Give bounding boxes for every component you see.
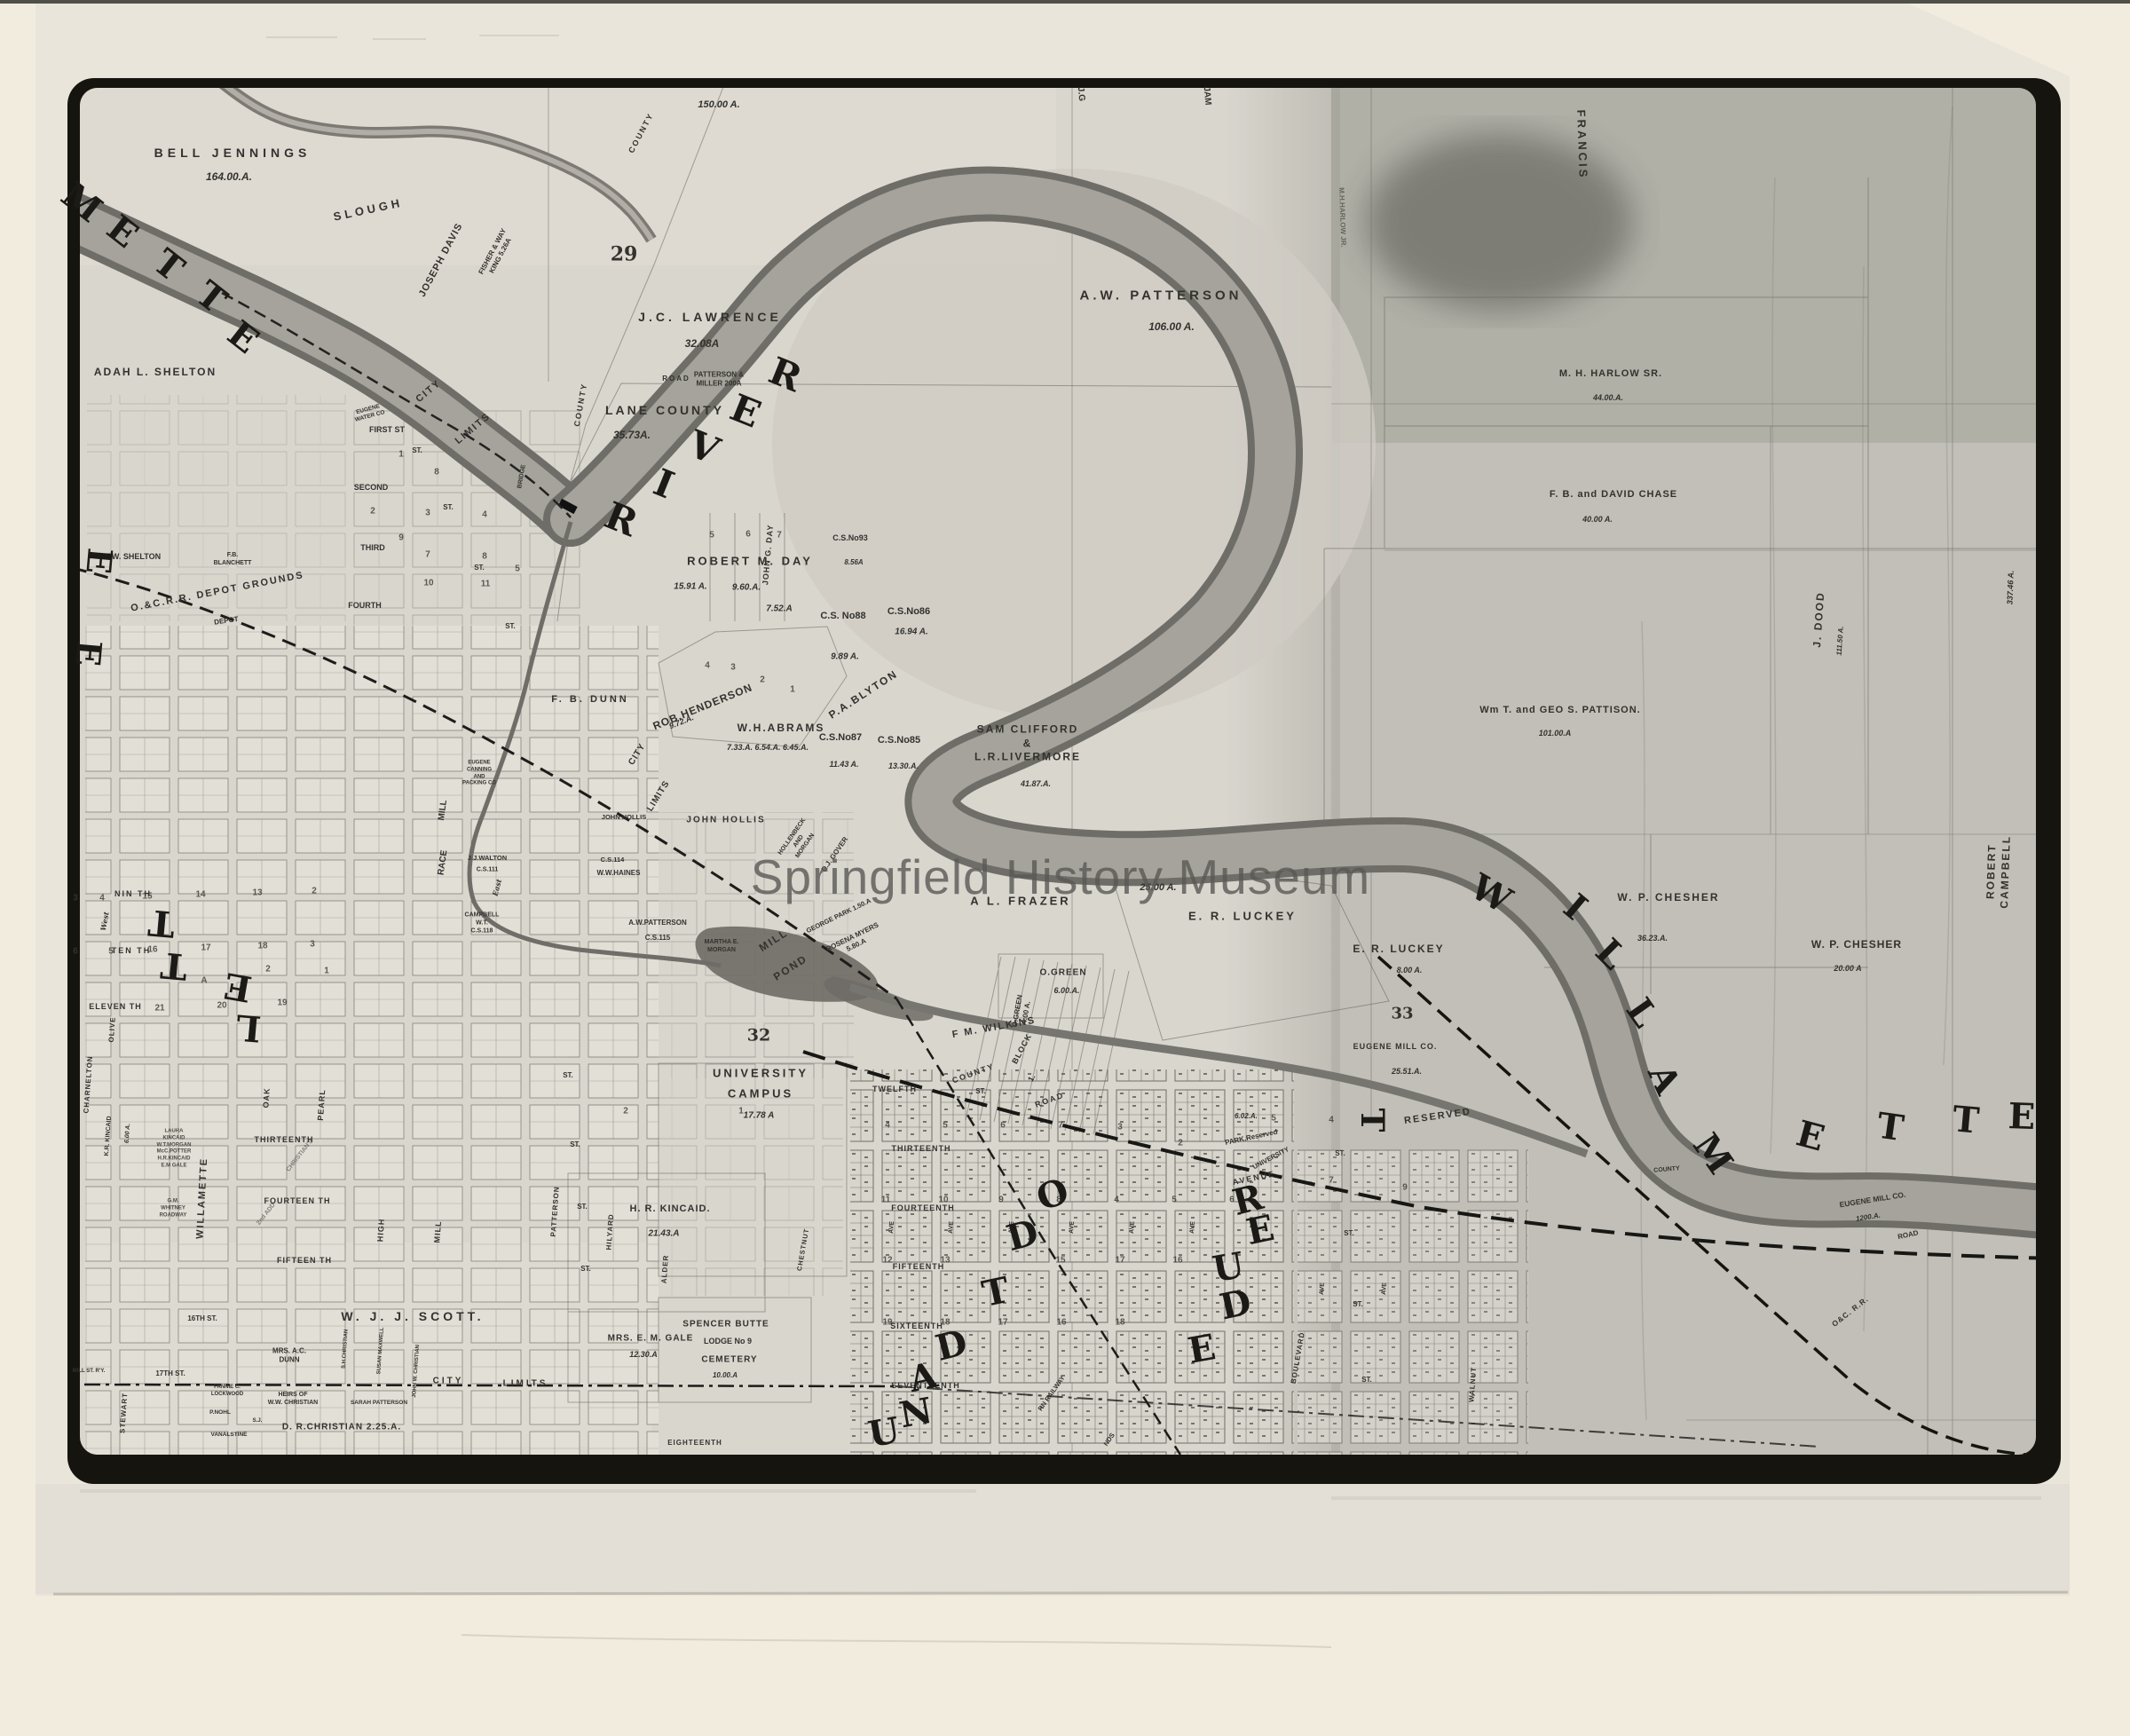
block-number-A: A — [201, 976, 207, 986]
label-oak: OAK — [261, 1087, 272, 1109]
block-number-4: 4 — [99, 894, 105, 904]
block-number-16: 16 — [1056, 1318, 1066, 1328]
block-number-17: 17 — [1115, 1256, 1124, 1266]
block-number-21: 21 — [154, 1004, 164, 1014]
big-letter-t: T — [146, 901, 177, 944]
label-st: ST. — [1344, 1229, 1354, 1238]
label-w-h-abrams: W.H.ABRAMS — [738, 722, 825, 736]
label-twelfth: TWELFTH — [872, 1085, 917, 1095]
label-road: ROAD — [662, 375, 690, 383]
block-number-7: 7 — [1058, 1121, 1063, 1131]
block-number-4: 4 — [1114, 1195, 1119, 1205]
label-44-00-a: 44.00.A. — [1593, 393, 1623, 404]
label-16th-st: 16TH ST. — [187, 1314, 217, 1323]
block-number-8: 8 — [1056, 1195, 1061, 1205]
label-20-00-a: 20.00 A — [1834, 964, 1861, 975]
label-c-s-no85: C.S.No85 — [878, 734, 920, 746]
label-fourteenth: FOURTEENTH — [891, 1203, 955, 1214]
label-150-00-a: 150.00 A. — [698, 99, 739, 111]
label-robert-m-day: ROBERT M. DAY — [687, 555, 813, 570]
label-mill-st-r-y: MILL ST. R'Y. — [73, 1369, 106, 1376]
block-number-3: 3 — [73, 894, 78, 904]
block-number-20: 20 — [217, 1001, 226, 1011]
label-st: ST. — [1353, 1300, 1363, 1309]
label-sarah-patterson: SARAH PATTERSON — [351, 1400, 407, 1407]
block-number-6: 6 — [73, 947, 78, 957]
block-number-15: 15 — [142, 892, 152, 902]
block-number-18: 18 — [940, 1318, 950, 1328]
block-number-7: 7 — [425, 550, 430, 560]
label-eugene-mill-co: EUGENE MILL CO. — [1353, 1042, 1438, 1053]
block-number-1: 1 — [324, 967, 329, 976]
label-st: ST. — [1361, 1376, 1372, 1385]
label-st: ST. — [570, 1140, 580, 1149]
label-17-78-a: 17.78 A — [744, 1110, 775, 1122]
label-12-30-a: 12.30.A — [629, 1350, 658, 1361]
big-letter-n: N — [896, 1390, 935, 1437]
label-mill: MILL — [432, 1220, 444, 1243]
label-9-60-a: 9.60.A. — [732, 582, 761, 594]
label-john-hollis: JOHN HOLLIS — [686, 815, 765, 826]
block-number-5: 5 — [515, 564, 520, 574]
label-c-s-no93: C.S.No93 — [832, 533, 868, 544]
label-olive: OLIVE — [107, 1016, 118, 1043]
label-c-s-111: C.S.111 — [477, 865, 499, 873]
block-number-4: 4 — [705, 661, 710, 671]
block-number-4: 4 — [1329, 1116, 1334, 1125]
section-number-29: 29 — [611, 242, 638, 268]
label-35-73a: 35.73A. — [613, 429, 651, 443]
label-st: ST. — [505, 622, 516, 631]
block-number-9: 9 — [1402, 1183, 1408, 1193]
big-letter-e: E — [67, 639, 109, 668]
label-eugene-canning-and-packing-co: EUGENE CANNING AND PACKING CO — [462, 760, 496, 787]
big-letter-e: E — [78, 547, 120, 576]
block-number-14: 14 — [195, 890, 205, 900]
block-number-13: 13 — [940, 1256, 950, 1266]
label-eighteenth: EIGHTEENTH — [667, 1439, 722, 1448]
block-number-8: 8 — [434, 468, 439, 477]
label-st: ST. — [1335, 1149, 1345, 1158]
label-7-33-a-6-54-a-6-45-a: 7.33.A. 6.54.A. 6.45.A. — [727, 743, 809, 754]
label-f-b-dunn: F. B. DUNN — [551, 693, 628, 706]
block-number-3: 3 — [310, 940, 315, 950]
block-number-6: 6 — [1229, 1195, 1235, 1205]
block-number-16: 16 — [1172, 1256, 1182, 1266]
photograph-of-historic-map: BELL JENNINGS164.00.A.150.00 A.SLOUGHCOU… — [0, 0, 2130, 1736]
block-number-9: 9 — [998, 1195, 1004, 1205]
label-d-r-christian-2-25-a: D. R.CHRISTIAN 2.25.A. — [282, 1422, 401, 1433]
block-number-19: 19 — [277, 998, 287, 1008]
label-6-00-a: 6.00 A. — [123, 1124, 133, 1144]
label-first-st: FIRST ST — [369, 425, 405, 436]
label-106-00-a: 106.00 A. — [1148, 320, 1195, 335]
block-number-9: 9 — [398, 533, 404, 543]
label-g-m-whitney-roadway: G.M. WHITNEY ROADWAY — [160, 1198, 187, 1219]
block-number-16: 16 — [147, 945, 157, 955]
label-ten-th: TEN TH — [112, 946, 152, 957]
section-number-32: 32 — [747, 1025, 770, 1047]
label-e-r-luckey: E. R. LUCKEY — [1188, 910, 1297, 925]
block-number-6: 6 — [745, 530, 751, 540]
block-number-10: 10 — [938, 1195, 948, 1205]
block-number-1: 1 — [398, 450, 404, 460]
label-vanalstine: VANALSTINE — [210, 1432, 247, 1439]
label-8-56a: 8.56A — [844, 558, 863, 567]
block-number-7: 7 — [1329, 1176, 1334, 1186]
label-15-91-a: 15.91 A. — [674, 581, 706, 593]
label-francis: FRANCIS — [1573, 109, 1590, 179]
block-number-1: 1 — [738, 1107, 744, 1117]
block-number-2: 2 — [1178, 1139, 1183, 1148]
label-ave: AVE — [947, 1221, 956, 1234]
label-a-w-patterson: A.W. PATTERSON — [1080, 287, 1242, 304]
block-number-2: 2 — [265, 965, 271, 975]
label-ave: AVE — [1318, 1282, 1327, 1295]
label-campus: CAMPUS — [728, 1087, 793, 1102]
label-robert-campbell: ROBERT CAMPBELL — [1983, 806, 2015, 938]
big-letter-t: T — [1874, 1105, 1906, 1150]
label-campbell-w-t-c-s-118: CAMPBELL W.T. C.S.118 — [465, 911, 500, 935]
label-ave: AVE — [887, 1221, 896, 1234]
label-st: ST. — [975, 1087, 986, 1096]
label-mrs-a-c-dunn: MRS. A.C. DUNN — [272, 1347, 306, 1366]
label-st: ST. — [580, 1265, 591, 1274]
label-lodge-no-9: LODGE No 9 — [704, 1337, 752, 1347]
watermark-text: Springfield History Museum — [751, 848, 1370, 905]
label-25-51-a: 25.51.A. — [1392, 1067, 1422, 1077]
block-number-3: 3 — [425, 509, 430, 518]
label-21-43-a: 21.43.A — [648, 1228, 679, 1240]
block-number-11: 11 — [481, 580, 491, 589]
big-letter-e: E — [2008, 1095, 2036, 1138]
label-6-00-a: 6.00.A. — [1053, 986, 1079, 997]
block-number-10: 10 — [423, 579, 433, 588]
label-41-87-a: 41.87.A. — [1021, 779, 1051, 790]
block-number-15: 15 — [1055, 1256, 1065, 1266]
label-bell-jennings: BELL JENNINGS — [154, 145, 312, 161]
label-h-r-kincaid: H. R. KINCAID. — [630, 1203, 711, 1215]
label-j-j-walton: J.J.WALTON — [468, 854, 507, 863]
label-10-00-a: 10.00.A — [713, 1371, 738, 1380]
label-fannie-c-lockwood: FANNIE C. LOCKWOOD — [211, 1385, 243, 1399]
label-limits: LIMITS — [503, 1378, 548, 1390]
label-j-g: J.G — [1075, 86, 1087, 101]
big-letter-l: L — [234, 1006, 263, 1049]
label-heirs-of-w-w-christian: HEIRS OF W.W. CHRISTIAN — [268, 1391, 318, 1407]
label-thirteenth: THIRTEENTH — [892, 1144, 951, 1155]
label-adah-l-shelton: ADAH L. SHELTON — [94, 366, 217, 380]
label-9-89-a: 9.89 A. — [831, 651, 859, 663]
label-m-h-harlow-sr: M. H. HARLOW SR. — [1559, 367, 1662, 380]
label-st: ST. — [577, 1203, 588, 1211]
label-high: HIGH — [375, 1218, 388, 1242]
block-number-12: 12 — [882, 1256, 892, 1266]
label-fourth: FOURTH — [348, 601, 382, 612]
block-number-18: 18 — [1115, 1318, 1124, 1328]
label-c-s-no86: C.S.No86 — [887, 605, 930, 618]
label-eleven-th: ELEVEN TH — [89, 1002, 142, 1013]
big-letter-t: T — [1951, 1098, 1981, 1141]
label-337-46-a: 337.46 A. — [2005, 570, 2016, 604]
label-j-c-lawrence: J.C. LAWRENCE — [638, 309, 782, 325]
label-ave: AVE — [1380, 1282, 1389, 1295]
label-second: SECOND — [354, 483, 389, 493]
label-john-hollis: JOHN HOLLIS — [602, 813, 646, 822]
label-w-w-haines: W.W.HAINES — [597, 869, 641, 878]
block-number-4: 4 — [885, 1121, 890, 1131]
label-e-r-luckey: E. R. LUCKEY — [1353, 943, 1444, 957]
label-mrs-e-m-gale: MRS. E. M. GALE — [608, 1333, 694, 1345]
block-number-3: 3 — [730, 663, 736, 673]
block-number-4: 4 — [482, 510, 487, 520]
label-13-30-a: 13.30.A. — [888, 761, 919, 772]
label-36-23-a: 36.23.A. — [1637, 934, 1668, 944]
block-number-2: 2 — [623, 1107, 628, 1117]
label-ave: AVE — [1068, 1221, 1077, 1234]
label-c-s-no87: C.S.No87 — [819, 731, 862, 744]
block-number-2: 2 — [760, 675, 765, 685]
block-number-17: 17 — [201, 943, 210, 953]
big-letter-t: T — [159, 943, 189, 987]
label-patterson-miller-200a: PATTERSON & MILLER 200A — [694, 371, 744, 390]
label-o-green: O.GREEN — [1039, 967, 1086, 979]
label-spencer-butte: SPENCER BUTTE — [682, 1319, 769, 1330]
label-city: CITY — [433, 1376, 464, 1387]
label-sam-clifford-l-r-livermore: SAM CLIFFORD & L.R.LIVERMORE — [974, 723, 1081, 765]
label-ave: AVE — [1188, 1221, 1197, 1234]
label-40-00-a: 40.00 A. — [1582, 515, 1613, 525]
block-number-5: 5 — [1271, 1114, 1276, 1124]
label-third: THIRD — [360, 543, 385, 554]
photo-paper-bottom — [35, 1484, 2070, 1594]
section-number-33: 33 — [1391, 1003, 1413, 1023]
block-number-3: 3 — [1117, 1123, 1123, 1132]
label-17th-st: 17TH ST. — [155, 1369, 185, 1378]
label-7-52-a: 7.52.A — [766, 604, 792, 615]
label-f-b-and-david-chase: F. B. and DAVID CHASE — [1550, 488, 1677, 501]
label-32-08a: 32.08A — [685, 337, 720, 351]
label-16-94-a: 16.94 A. — [895, 627, 927, 638]
label-164-00-a: 164.00.A. — [206, 170, 252, 185]
big-letter-t: T — [1353, 1109, 1391, 1132]
label-pearl: PEARL — [316, 1089, 328, 1121]
label-wm-t-and-geo-s-pattison: Wm T. and GEO S. PATTISON. — [1479, 704, 1640, 716]
label-11-43-a: 11.43 A. — [829, 760, 858, 770]
block-number-5: 5 — [108, 947, 114, 957]
block-number-5: 5 — [1171, 1195, 1177, 1205]
mount-wedge — [1908, 4, 2070, 76]
block-number-1: 1 — [790, 685, 795, 695]
label-c-s-115: C.S.115 — [645, 934, 670, 943]
label-st: ST. — [412, 446, 422, 455]
block-number-5: 5 — [943, 1121, 948, 1131]
label-fifteenth: FIFTEENTH — [893, 1262, 945, 1273]
label-p-nohl: P.NOHL — [209, 1409, 231, 1416]
block-number-2: 2 — [370, 507, 375, 517]
block-number-18: 18 — [257, 942, 267, 951]
block-number-19: 19 — [882, 1318, 892, 1328]
label-a-w-patterson: A.W.PATTERSON — [628, 919, 686, 927]
label-jam: JAM — [1201, 86, 1214, 106]
label-s-j: S.J. — [253, 1418, 263, 1425]
block-number-6: 6 — [1000, 1121, 1006, 1131]
label-w-j-j-scott: W. J. J. SCOTT. — [341, 1308, 484, 1324]
label-101-00-a: 101.00.A — [1539, 729, 1572, 739]
label-w-p-chesher: W. P. CHESHER — [1617, 891, 1719, 905]
label-st: ST. — [474, 564, 485, 572]
label-cemetery: CEMETERY — [701, 1354, 757, 1366]
label-st: ST. — [563, 1071, 573, 1080]
label-6-02-a: 6.02.A. — [1235, 1112, 1258, 1121]
label-8-00-a: 8.00 A. — [1397, 966, 1423, 976]
label-f-b-blanchett: F.B. BLANCHETT — [214, 551, 252, 567]
block-number-17: 17 — [998, 1318, 1007, 1328]
label-c-s-114: C.S.114 — [601, 856, 625, 864]
block-number-11: 11 — [881, 1195, 891, 1205]
label-w-p-chesher: W. P. CHESHER — [1811, 938, 1902, 952]
block-number-8: 8 — [482, 552, 487, 562]
block-number-7: 7 — [777, 531, 782, 541]
label-st: ST. — [443, 503, 454, 512]
label-martha-e-morgan: MARTHA E. MORGAN — [705, 938, 739, 954]
label-laura-kincaid-w-t-morgan-mcc-potter-h-r-: LAURA KINCAID W.T.MORGAN McC.POTTER H.R.… — [157, 1129, 192, 1171]
block-number-13: 13 — [252, 888, 262, 898]
label-fifteen-th: FIFTEEN TH — [277, 1256, 332, 1266]
block-number-5: 5 — [709, 531, 714, 541]
label-c-s-no88: C.S. No88 — [820, 610, 865, 622]
label-lane-county: LANE COUNTY — [605, 402, 724, 418]
block-number-2: 2 — [312, 887, 317, 896]
label-ave: AVE — [1128, 1221, 1137, 1234]
label-university: UNIVERSITY — [713, 1067, 809, 1082]
